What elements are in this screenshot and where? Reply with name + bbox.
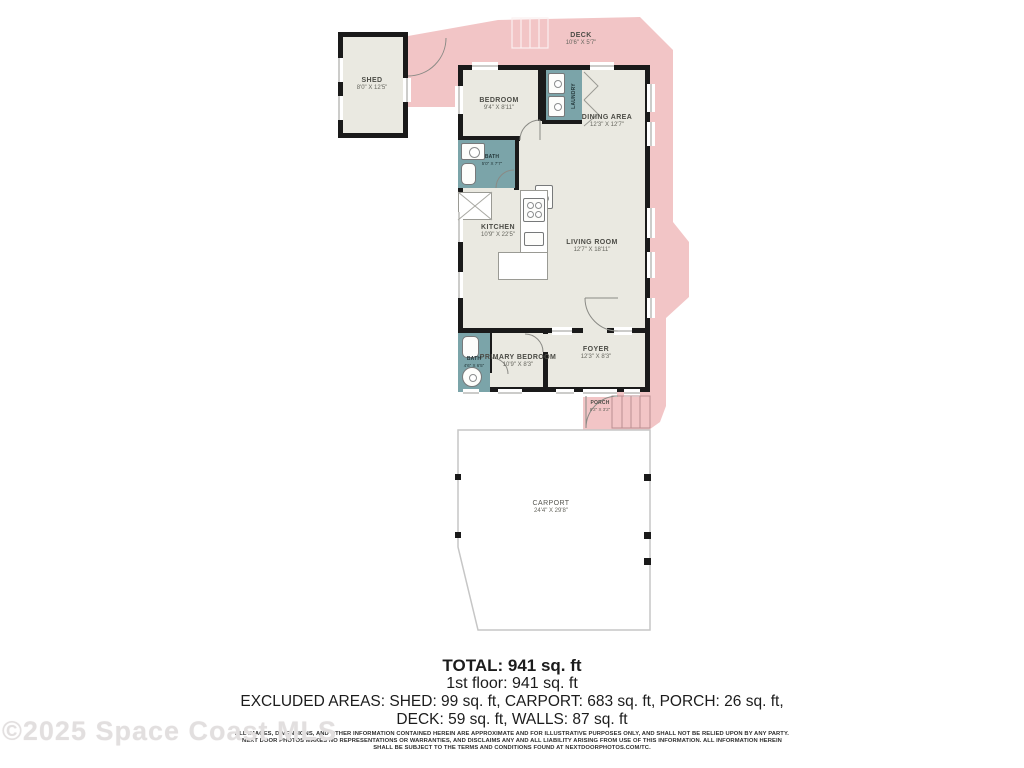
window bbox=[647, 208, 655, 238]
living-dims: 12'7" X 18'11" bbox=[566, 247, 617, 253]
shed-name: SHED bbox=[357, 77, 388, 84]
room-label-primary-bedroom: PRIMARY BEDROOM 10'9" X 8'3" bbox=[480, 354, 556, 368]
carport-post bbox=[455, 532, 461, 538]
window bbox=[647, 298, 655, 318]
room-label-carport: CARPORT 24'4" X 29'8" bbox=[533, 500, 570, 514]
kitchen-sink bbox=[524, 232, 544, 246]
bath2-name: BATH bbox=[464, 356, 484, 362]
carport-post bbox=[455, 474, 461, 480]
dryer bbox=[548, 96, 565, 117]
mid-wall-window bbox=[614, 327, 632, 335]
foyer-name: FOYER bbox=[581, 346, 612, 353]
deck-dims: 10'6" X 5'7" bbox=[566, 40, 597, 46]
window bbox=[647, 122, 655, 146]
bath2-dims: 4'6" X 6'5" bbox=[464, 363, 484, 368]
deck-name: DECK bbox=[566, 32, 597, 39]
carport-name: CARPORT bbox=[533, 500, 570, 507]
carport-dims: 24'4" X 29'8" bbox=[533, 508, 570, 514]
tiled-closet bbox=[458, 192, 492, 220]
window bbox=[498, 389, 522, 397]
bath2-toilet bbox=[462, 336, 479, 358]
room-label-deck: DECK 10'6" X 5'7" bbox=[566, 32, 597, 46]
window bbox=[556, 389, 574, 397]
window bbox=[472, 62, 498, 70]
mls-watermark: ©2025 Space Coast MLS bbox=[2, 716, 337, 747]
stove bbox=[523, 198, 545, 222]
living-door-gap bbox=[583, 328, 607, 333]
room-label-kitchen: KITCHEN 10'9" X 22'5" bbox=[481, 224, 515, 238]
bath1-name: BATH bbox=[482, 154, 502, 160]
floorplan-page: SHED 8'0" X 12'5" DECK 10'6" X 5'7" BEDR… bbox=[0, 0, 1024, 768]
bath1-toilet bbox=[461, 163, 476, 185]
carport-outline bbox=[458, 430, 650, 630]
total-area-text: TOTAL: 941 sq. ft bbox=[0, 656, 1024, 675]
carport-post bbox=[644, 474, 651, 481]
laundry-name: LAUNDRY bbox=[571, 83, 577, 109]
dining-name: DINING AREA bbox=[582, 114, 632, 121]
excluded-areas-line1: EXCLUDED AREAS: SHED: 99 sq. ft, CARPORT… bbox=[0, 693, 1024, 711]
kitchen-counter-foot bbox=[498, 252, 548, 280]
room-label-bath1: BATH 5'0" X 7'7" bbox=[482, 154, 502, 166]
carport-post bbox=[644, 558, 651, 565]
room-label-foyer: FOYER 12'3" X 8'3" bbox=[581, 346, 612, 360]
shed-window bbox=[335, 58, 343, 82]
carport-post bbox=[644, 532, 651, 539]
room-label-dining: DINING AREA 12'3" X 12'7" bbox=[582, 114, 632, 128]
window bbox=[590, 62, 614, 70]
room-label-laundry: LAUNDRY bbox=[571, 83, 577, 109]
room-label-shed: SHED 8'0" X 12'5" bbox=[357, 77, 388, 91]
bedroom-dims: 9'4" X 8'11" bbox=[479, 105, 518, 111]
primary-door-gap bbox=[543, 334, 548, 352]
wall-laundry-bottom bbox=[542, 120, 582, 124]
window bbox=[455, 86, 463, 114]
porch-dims: 8'2" X 3'2" bbox=[590, 407, 610, 412]
room-label-bedroom: BEDROOM 9'4" X 8'11" bbox=[479, 97, 518, 111]
foyer-dims: 12'3" X 8'3" bbox=[581, 354, 612, 360]
window bbox=[624, 389, 640, 397]
dining-dims: 12'3" X 12'7" bbox=[582, 122, 632, 128]
window bbox=[647, 252, 655, 278]
bath1-dims: 5'0" X 7'7" bbox=[482, 161, 502, 166]
washer bbox=[548, 73, 565, 94]
window bbox=[647, 84, 655, 112]
kitchen-name: KITCHEN bbox=[481, 224, 515, 231]
primary-bedroom-dims: 10'9" X 8'3" bbox=[480, 362, 556, 368]
kitchen-dims: 10'9" X 22'5" bbox=[481, 232, 515, 238]
shed-dims: 8'0" X 12'5" bbox=[357, 85, 388, 91]
room-label-living: LIVING ROOM 12'7" X 18'11" bbox=[566, 239, 617, 253]
mid-wall-window bbox=[552, 327, 572, 335]
first-floor-area-text: 1st floor: 941 sq. ft bbox=[0, 675, 1024, 693]
porch-name: PORCH bbox=[590, 400, 610, 406]
room-label-porch: PORCH 8'2" X 3'2" bbox=[590, 400, 610, 412]
room-label-bath2: BATH 4'6" X 6'5" bbox=[464, 356, 484, 368]
bedroom-name: BEDROOM bbox=[479, 97, 518, 104]
window bbox=[455, 272, 463, 298]
window bbox=[455, 212, 463, 242]
bath2-sink bbox=[462, 367, 482, 387]
window bbox=[463, 389, 479, 397]
french-door bbox=[583, 389, 617, 397]
primary-bedroom-name: PRIMARY BEDROOM bbox=[480, 354, 556, 361]
shed-window bbox=[335, 96, 343, 120]
living-name: LIVING ROOM bbox=[566, 239, 617, 246]
shed-window bbox=[403, 78, 411, 102]
